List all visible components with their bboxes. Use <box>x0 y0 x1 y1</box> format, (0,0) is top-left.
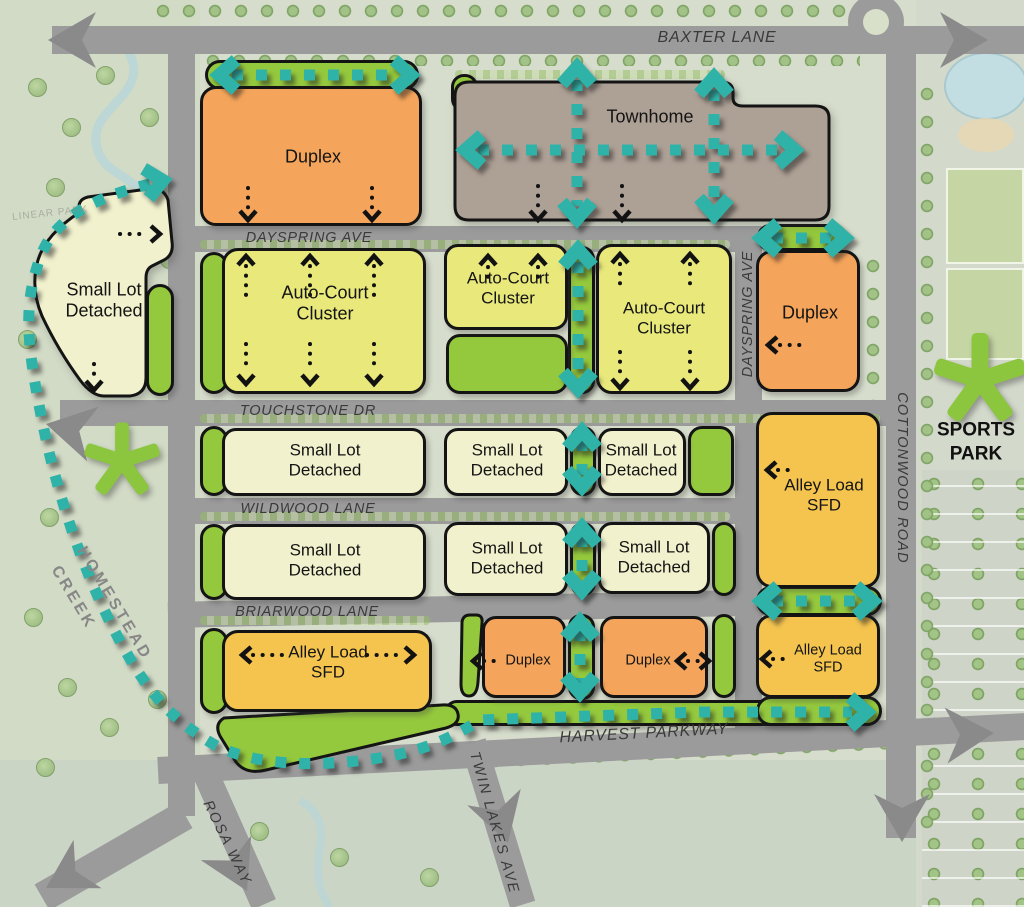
tree-row <box>150 2 850 20</box>
street-label-baxter: BAXTER LANE <box>657 29 776 47</box>
zone-label-auto-court: Auto-Court Cluster <box>456 268 560 307</box>
roundabout-island <box>863 9 889 35</box>
tree-row <box>862 252 884 402</box>
street-label-touchstone: TOUCHSTONE DR <box>240 403 376 419</box>
street-label-briarwood: BRIARWOOD LANE <box>235 604 379 620</box>
zone-label-small-lot: Small Lot Detached <box>461 538 553 577</box>
zone-label-alley-load: Alley Load SFD <box>278 642 378 681</box>
green-strip <box>568 614 595 700</box>
zone-label-duplex: Duplex <box>285 147 341 168</box>
zone-label-duplex: Duplex <box>782 303 838 324</box>
green-strip <box>570 426 596 496</box>
sports-park-label: SPORTS PARK <box>931 418 1021 466</box>
playground <box>958 118 1014 152</box>
zone-label-small-lot: Small Lot Detached <box>279 440 371 479</box>
green-block <box>446 334 568 394</box>
street-label-cottonwood: COTTONWOOD ROAD <box>894 392 910 564</box>
zone-label-small-lot: Small Lot Detached <box>595 440 687 479</box>
green-strip-trail <box>756 586 882 616</box>
zone-label-small-lot: Small Lot Detached <box>608 537 700 576</box>
green-block <box>688 426 734 496</box>
zone-label-townhome: Townhome <box>606 107 693 128</box>
green-strip-trail <box>756 696 882 726</box>
zone-label-small-lot: Small Lot Detached <box>279 540 371 579</box>
sports-field <box>946 268 1024 360</box>
green-strip <box>570 522 596 596</box>
zone-label-small-lot: Small Lot Detached <box>461 440 553 479</box>
green-strip <box>712 614 736 698</box>
zone-townhome <box>449 74 839 230</box>
zone-label-duplex: Duplex <box>505 653 550 670</box>
sports-field <box>946 168 1024 264</box>
zone-label-alley-load: Alley Load SFD <box>780 475 868 514</box>
pond <box>944 52 1024 120</box>
site-plan-map: Duplex Townhome Auto-Court Cluster Auto-… <box>0 0 1024 907</box>
zone-label-duplex: Duplex <box>625 653 670 670</box>
zone-label-auto-court: Auto-Court Cluster <box>271 282 379 323</box>
green-strip <box>712 522 736 596</box>
zone-label-auto-court: Auto-Court Cluster <box>612 298 716 337</box>
zone-label-small-lot: Small Lot Detached <box>54 279 154 320</box>
zone-label-alley-load: Alley Load SFD <box>788 642 868 675</box>
street-label-dayspring-vertical: DAYSPRING AVE <box>740 251 756 377</box>
green-strip <box>568 246 595 394</box>
street-label-wildwood: WILDWOOD LANE <box>240 501 375 517</box>
street-label-dayspring: DAYSPRING AVE <box>246 230 372 246</box>
